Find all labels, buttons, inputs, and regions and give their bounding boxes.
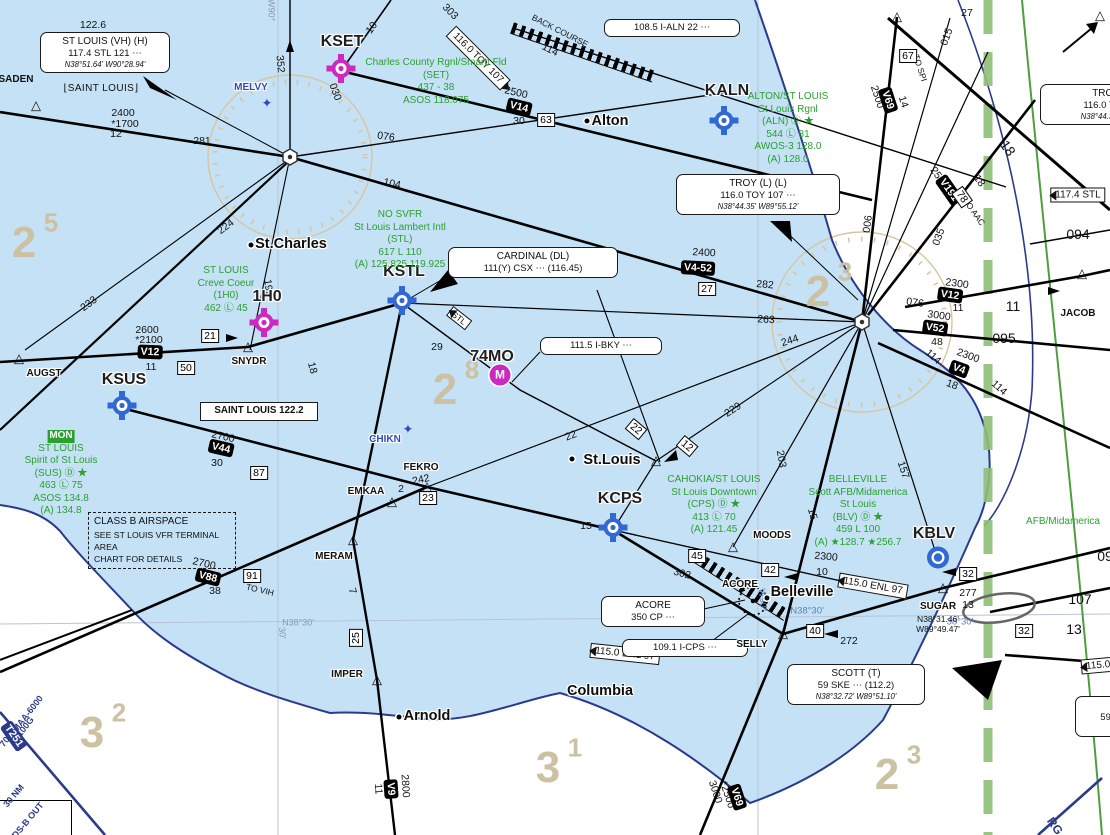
nav-info-line: 108.5 I-ALN 22 ⋯	[610, 22, 734, 34]
chart-label: ⌊SAINT LOUIS⌋	[63, 84, 138, 94]
city-label: St.Louis	[583, 453, 640, 468]
airport-info-line: (ALN) Ⓓ ★	[748, 116, 829, 129]
city-label: Columbia	[567, 684, 633, 699]
fix-triangle-icon: △	[372, 673, 382, 688]
chart-label: W89°49.47'	[916, 625, 960, 634]
airport-id-kcps: KCPS	[598, 491, 642, 507]
airport-info-1h0: ST LOUISCreve Coeur(1H0)462 Ⓛ 45	[198, 265, 255, 315]
airport-info-line: 459 L 100	[809, 524, 908, 537]
nav-info-line: CARDINAL (DL)	[454, 250, 612, 263]
nav-info-line: SEE ST LOUIS VFR TERMINAL AREA	[94, 529, 230, 553]
city-dot	[570, 457, 575, 462]
nav-info-line: 59 SKE ⋯ (112.2)	[793, 680, 919, 692]
airport-info-line: St Louis Lambert Intl	[354, 222, 446, 235]
chart-label: 09	[1097, 549, 1110, 563]
city-dot	[397, 715, 402, 720]
airport-info-line: (A) 128.0	[748, 154, 829, 167]
chart-label: 076	[906, 297, 925, 310]
fix-triangle-icon: △	[422, 480, 432, 495]
fix-triangle-icon: △	[651, 454, 661, 469]
fix-label-chikn: CHIKN	[369, 435, 401, 445]
nav-info-line: N38°32.72'	[1081, 724, 1110, 734]
fix-triangle-icon: △	[778, 627, 788, 642]
airport-info-line: ST LOUIS	[198, 265, 255, 278]
fix-label-fekro: FEKRO	[404, 463, 439, 473]
fix-label-emkaa: EMKAA	[348, 487, 385, 497]
chart-label: 11	[1006, 299, 1021, 313]
airport-id-74mo: 74MO	[470, 349, 514, 365]
airport-info-line: St Louis Rgnl	[748, 104, 829, 117]
mef-figure-exponent: 1	[568, 733, 582, 764]
nav-info-box: SCOTT (T)59 SKE ⋯ (112.2)N38°32.72'	[1075, 696, 1110, 737]
mileage-box: 63	[537, 113, 555, 127]
airport-info-line: Creve Coeur	[198, 278, 255, 291]
nav-info-line: N38°44.35' W89°55.12'	[682, 202, 834, 212]
airway-shield-v4-52: V4-52	[681, 260, 716, 276]
chart-label: 203	[774, 449, 787, 468]
airport-id-kaln: KALN	[705, 83, 749, 99]
nav-info-line: 116.0 TOY 107 ⋯	[682, 190, 834, 202]
fix-triangle-icon: △	[348, 533, 358, 548]
nav-info-line: N38°32.72' W89°51.10'	[793, 692, 919, 702]
airport-id-ksus: KSUS	[102, 372, 146, 388]
chart-label: 12	[110, 129, 122, 140]
chart-label: 48	[931, 337, 943, 348]
mileage-box: 50	[177, 361, 195, 375]
airport-info-kcps: CAHOKIA/ST LOUISSt Louis Downtown(CPS) Ⓓ…	[667, 474, 760, 537]
nav-info-box: CARDINAL (DL)111(Y) CSX ⋯ (116.45)	[448, 247, 618, 278]
nav-info-box: 111.5 I-BKY ⋯	[540, 337, 662, 355]
nav-info-line: ST LOUIS (VH) (H)	[46, 35, 164, 48]
airport-info-line: St Louis	[809, 499, 908, 512]
mef-figure-exponent: 5	[44, 208, 58, 239]
fix-triangle-icon: △	[892, 10, 902, 25]
fix-label-imper: IMPER	[331, 670, 363, 680]
chart-label: 29	[431, 342, 443, 353]
freq-flag: 117.4 STL	[1050, 188, 1105, 203]
nav-info-line: SCOTT (T)	[1081, 699, 1110, 712]
city-label: Arnold	[404, 709, 451, 724]
fix-label-acore: ACORE	[722, 580, 758, 590]
airport-info-line: Spirit of St Louis	[25, 455, 98, 468]
airport-info-line: ASOS 134.8	[25, 493, 98, 506]
fix-label-melvy: MELVY	[234, 83, 268, 93]
airport-info-line: MON	[25, 430, 98, 443]
fix-label-sugar: SUGAR	[920, 602, 956, 612]
airport-info-line: (A) 125.825 119.925	[354, 259, 446, 272]
fix-label-selly: SELLY	[736, 640, 767, 650]
city-label: St.Charles	[255, 237, 327, 252]
chart-label: N38°31.46'	[917, 615, 959, 624]
nav-info-line: CLASS B AIRSPACE	[94, 515, 230, 529]
chart-label: 10	[816, 567, 828, 578]
airport-info-line: 463 Ⓛ 75	[25, 480, 98, 493]
city-dot	[249, 243, 254, 248]
airport-info-line: Scott AFB/Midamerica	[809, 487, 908, 500]
rnav-fix-star-icon: ✦	[403, 423, 414, 438]
airport-info-line: 544 Ⓛ 81	[748, 129, 829, 142]
nav-info-box: 109.1 I-CPS ⋯	[622, 639, 748, 657]
mileage-box: 40	[806, 624, 824, 638]
nav-info-line: ACORE	[607, 599, 699, 612]
chart-label: 13	[962, 600, 974, 611]
airport-info-kstl: NO SVFRSt Louis Lambert Intl(STL)617 L 1…	[354, 209, 446, 272]
airport-info-line: 617 L 110	[354, 247, 446, 260]
mileage-box: 32	[1015, 624, 1033, 638]
nav-info-line: N38°51.64' W90°28.94'	[46, 60, 164, 70]
chart-label: 122.6	[80, 20, 106, 31]
airport-info-ksus: MONST LOUISSpirit of St Louis(SUS) Ⓓ ★46…	[25, 430, 98, 518]
airport-info-kaln: ALTON/ST LOUISSt Louis Rgnl(ALN) Ⓓ ★544 …	[748, 91, 829, 166]
chart-label: 15	[580, 521, 592, 532]
mon-badge: MON	[47, 430, 74, 443]
nav-info-line: 111(Y) CSX ⋯ (116.45)	[454, 263, 612, 275]
airport-info-line: (A) ★128.7 ★256.7	[809, 537, 908, 550]
private-airport-icon-74mo: M	[490, 365, 511, 386]
airport-info-line: (SET)	[365, 70, 506, 83]
fix-triangle-icon: △	[387, 495, 397, 510]
chart-label: 27	[961, 8, 973, 19]
airport-info-line: (A) 121.45	[667, 524, 760, 537]
nav-info-line: TROY (L) (L)	[1046, 87, 1110, 100]
fix-label-jacob: JACOB	[1060, 309, 1095, 319]
mef-figure: 2	[875, 750, 899, 800]
airport-info-line: (A) 134.8	[25, 505, 98, 518]
airport-info-line: (STL)	[354, 234, 446, 247]
mef-figure-exponent: 3	[907, 740, 921, 771]
vor-airport-icon-kcps	[597, 512, 629, 549]
nav-info-line: SAINT LOUIS 122.2	[206, 405, 312, 418]
chart-label: 30'	[277, 627, 287, 639]
chart-label: 38	[209, 586, 221, 597]
chart-label: W90°	[267, 0, 276, 21]
mef-figure: 2	[433, 365, 457, 415]
airway-shield-v9: V9	[383, 779, 398, 799]
fix-label-meram: MERAM	[315, 552, 353, 562]
nav-info-line: 59 SKE ⋯ (112.2)	[1081, 712, 1110, 724]
mef-figure: 3	[536, 743, 560, 793]
airport-info-line: (SUS) Ⓓ ★	[25, 468, 98, 481]
fix-triangle-icon: △	[728, 540, 738, 555]
mileage-box: 32	[959, 567, 977, 581]
nav-info-line: N38°44.35' W89°55.12'	[1046, 112, 1110, 122]
chart-label: 107	[1068, 592, 1091, 606]
airport-info-line: ST LOUIS	[25, 443, 98, 456]
chart-label: 30	[513, 116, 525, 127]
nav-info-box: ACORE350 CP ⋯	[601, 596, 705, 627]
nav-info-box: ST LOUIS (VH) (H)117.4 STL 121 ⋯N38°51.6…	[40, 32, 170, 73]
chart-label: 18	[305, 361, 318, 375]
chart-label: 11	[953, 303, 964, 314]
airport-id-1h0: 1H0	[252, 289, 281, 305]
airport-info-kset: Charles County Rgnl/Smartt Fld(SET)437 -…	[365, 57, 506, 107]
fix-triangle-icon: △	[938, 581, 948, 596]
chart-label: 272	[840, 636, 858, 647]
airport-info-line: 462 Ⓛ 45	[198, 303, 255, 316]
city-dot	[585, 119, 590, 124]
nav-info-box: TROY (L) (L)116.0 TOY 107 ⋯N38°44.35' W8…	[1040, 84, 1110, 125]
mef-figure: 3	[80, 708, 104, 758]
chart-label: 2300	[814, 551, 838, 563]
airport-info-line: AWOS-3 128.0	[748, 141, 829, 154]
fix-label-augst: AUGST	[27, 369, 62, 379]
vor-airport-icon-ksus	[106, 390, 138, 427]
mileage-box: 87	[250, 466, 268, 480]
airport-info-line: St Louis Downtown	[667, 487, 760, 500]
airport-info-line: (BLV) Ⓓ ★	[809, 512, 908, 525]
chart-label: 263	[757, 314, 775, 325]
mileage-box: 25	[349, 629, 363, 647]
chart-label: 006	[862, 215, 875, 234]
chart-label: 352	[274, 55, 286, 73]
chart-label: 11	[372, 783, 383, 795]
chart-label: 11	[146, 362, 157, 373]
mileage-box: 91	[243, 569, 261, 583]
mileage-box: 67	[899, 49, 917, 63]
nav-info-line: TROY (L) (L)	[682, 177, 834, 190]
airport-info-line: ASOS 118.075	[365, 95, 506, 108]
chart-label: 076	[377, 131, 396, 144]
airway-shield-v12: V12	[137, 345, 162, 360]
airport-id-kset: KSET	[321, 34, 364, 50]
fix-label-snydr: SNYDR	[231, 357, 266, 367]
fix-triangle-icon: △	[14, 352, 24, 367]
nav-info-box: SAINT LOUIS 122.2	[200, 402, 318, 421]
airport-info-line: NO SVFR	[354, 209, 446, 222]
vor-airport-icon-kset	[325, 53, 357, 90]
military-airport-icon-kblv	[925, 545, 951, 576]
chart-label: 13	[1066, 622, 1082, 636]
chart-label: N38°30'	[790, 606, 824, 616]
mileage-box: 45	[688, 549, 706, 563]
chart-label: 2400	[692, 247, 716, 259]
fix-triangle-icon: △	[1077, 267, 1087, 282]
rnav-fix-star-icon: ✦	[262, 97, 273, 112]
nav-info-box: SCOTT (T)59 SKE ⋯ (112.2)N38°32.72' W89°…	[787, 664, 925, 705]
chart-label: 094	[1066, 227, 1089, 241]
vor-airport-icon-kaln	[708, 105, 740, 142]
chart-label: 095	[992, 331, 1015, 345]
chart-label: SADEN	[0, 75, 34, 85]
mileage-box: 27	[698, 282, 716, 296]
nav-info-line: CHART FOR DETAILS	[94, 553, 230, 565]
fix-triangle-icon: △	[31, 99, 41, 114]
mileage-box: 21	[201, 329, 219, 343]
vor-airport-icon-kstl	[386, 285, 418, 322]
nav-info-box: CLASS B AIRSPACESEE ST LOUIS VFR TERMINA…	[88, 512, 236, 569]
nav-info-line: 111.5 I-BKY ⋯	[546, 340, 656, 352]
nav-info-line: SCOTT (T)	[793, 667, 919, 680]
city-label: Alton	[591, 114, 628, 129]
airport-info-line: Charles County Rgnl/Smartt Fld	[365, 57, 506, 70]
mef-figure: 2	[12, 218, 36, 268]
airport-info-line: (CPS) Ⓓ ★	[667, 499, 760, 512]
city-dot	[765, 596, 770, 601]
chart-label: 2400	[111, 108, 134, 119]
nav-info-line: 117.4 STL 121 ⋯	[46, 48, 164, 60]
airport-info-line: 413 Ⓛ 70	[667, 512, 760, 525]
nav-info-box: 108.5 I-ALN 22 ⋯	[604, 19, 740, 37]
chart-label: 277	[959, 588, 977, 599]
mef-figure-exponent: 2	[112, 698, 126, 729]
mef-figure: 2	[806, 267, 830, 317]
airport-info-line: BELLEVILLE	[809, 474, 908, 487]
airport-info-line: ALTON/ST LOUIS	[748, 91, 829, 104]
chart-label: 2800	[399, 774, 411, 798]
chart-label: 281	[193, 136, 211, 147]
mileage-box: 42	[761, 563, 779, 577]
nav-info-box: TROY (L) (L)116.0 TOY 107 ⋯N38°44.35' W8…	[676, 174, 840, 215]
nav-info-line: 109.1 I-CPS ⋯	[628, 642, 742, 654]
airport-info-kblv: BELLEVILLEScott AFB/MidamericaSt Louis(B…	[809, 474, 908, 549]
city-label: Belleville	[771, 585, 834, 600]
mef-figure-exponent: 3	[838, 257, 852, 288]
chart-label: 282	[756, 279, 774, 291]
fix-triangle-icon: △	[1095, 9, 1105, 24]
chart-label: 2	[398, 484, 404, 495]
chart-label: AFB/Midamerica	[1026, 517, 1100, 527]
chart-label: 30	[211, 458, 223, 469]
airport-info-line: (1H0)	[198, 290, 255, 303]
airport-id-kblv: KBLV	[913, 526, 955, 542]
airport-info-line: 437 - 38	[365, 82, 506, 95]
airport-info-line: CAHOKIA/ST LOUIS	[667, 474, 760, 487]
ifr-enroute-chart: 122.6⌊SAINT LOUIS⌋SADEN2400*170012281352…	[0, 0, 1110, 835]
chart-canvas	[0, 0, 1110, 835]
nav-info-line: 116.0 TOY 107 ⋯	[1046, 100, 1110, 112]
nav-info-line: 350 CP ⋯	[607, 612, 699, 624]
